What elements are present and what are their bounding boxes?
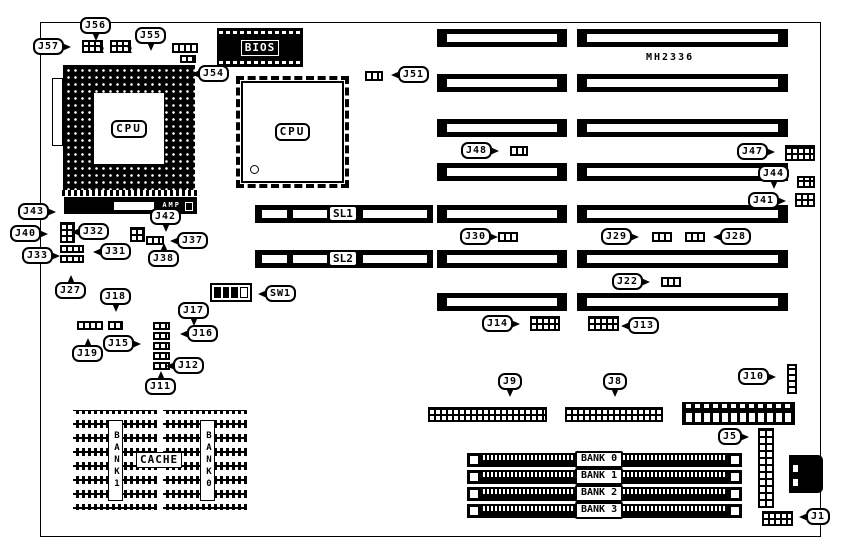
callout-j43: J43 bbox=[18, 203, 49, 220]
sw1-cell bbox=[231, 287, 238, 298]
jumper-block bbox=[153, 352, 170, 360]
callout-j15: J15 bbox=[103, 335, 134, 352]
expansion-slot bbox=[437, 293, 567, 311]
jumper-block bbox=[60, 255, 84, 263]
slot-contact-stripe bbox=[587, 34, 778, 42]
jumper-block bbox=[652, 232, 672, 242]
socket-pin-strip bbox=[62, 190, 197, 196]
jumper-block bbox=[758, 428, 774, 508]
slot-contact-stripe bbox=[447, 168, 557, 176]
simm-socket: BANK 1 bbox=[467, 470, 742, 484]
slot-contact-stripe bbox=[587, 79, 778, 87]
jumper-block bbox=[795, 193, 815, 207]
callout-j38: J38 bbox=[148, 250, 179, 267]
expansion-slot bbox=[577, 74, 788, 92]
callout-tail-icon bbox=[51, 252, 60, 260]
cpu-pga-socket: CPU bbox=[63, 65, 195, 194]
slot-contact-stripe bbox=[587, 298, 778, 306]
callout-j30: J30 bbox=[460, 228, 491, 245]
jumper-block bbox=[530, 316, 560, 331]
slot-contact-stripe bbox=[447, 79, 557, 87]
cache-label: CACHE bbox=[136, 452, 182, 468]
callout-tail-icon bbox=[489, 233, 498, 241]
jumper-block bbox=[588, 316, 619, 331]
callout-tail-icon bbox=[84, 338, 92, 347]
slot-contact-stripe bbox=[447, 34, 557, 42]
callout-j13: J13 bbox=[628, 317, 659, 334]
callout-tail-icon bbox=[611, 388, 619, 397]
slot-contact-stripe bbox=[363, 255, 427, 263]
expansion-slot bbox=[437, 74, 567, 92]
callout-j32: J32 bbox=[78, 223, 109, 240]
slot-contact-stripe bbox=[587, 168, 778, 176]
callout-tail-icon bbox=[157, 371, 165, 380]
callout-tail-icon bbox=[641, 278, 650, 286]
cache-bank1-label: BANK1 bbox=[108, 420, 123, 501]
expansion-slot bbox=[577, 29, 788, 47]
callout-tail-icon bbox=[799, 513, 808, 521]
cpu-socket-label: CPU bbox=[111, 120, 147, 138]
callout-tail-icon bbox=[112, 303, 120, 312]
jumper-block bbox=[787, 364, 797, 394]
expansion-slot bbox=[437, 250, 567, 268]
callout-tail-icon bbox=[67, 275, 75, 284]
callout-j9: J9 bbox=[498, 373, 522, 390]
jumper-block bbox=[498, 232, 518, 242]
callout-tail-icon bbox=[740, 433, 749, 441]
callout-j42: J42 bbox=[150, 208, 181, 225]
jumper-block bbox=[153, 342, 170, 350]
callout-j48: J48 bbox=[461, 142, 492, 159]
slot-contact-stripe bbox=[293, 210, 327, 218]
callout-j29: J29 bbox=[601, 228, 632, 245]
sw1-dip-switch bbox=[210, 283, 252, 302]
power-connector bbox=[682, 402, 795, 425]
callout-sw1: SW1 bbox=[265, 285, 296, 302]
pin2-marker: 2 bbox=[127, 46, 132, 56]
callout-j22: J22 bbox=[612, 273, 643, 290]
expansion-slot bbox=[437, 29, 567, 47]
expansion-slot bbox=[437, 163, 567, 181]
simm-bank-label: BANK 2 bbox=[575, 485, 623, 502]
callout-j5: J5 bbox=[718, 428, 742, 445]
callout-j51: J51 bbox=[398, 66, 429, 83]
callout-tail-icon bbox=[506, 388, 514, 397]
board-model-text: MH2336 bbox=[646, 52, 694, 63]
bios-label: BIOS bbox=[241, 40, 280, 56]
expansion-slot bbox=[577, 163, 788, 181]
cpu-qfp-body: CPU bbox=[241, 81, 344, 183]
slot-contact-stripe bbox=[587, 124, 778, 132]
callout-j47: J47 bbox=[737, 143, 768, 160]
slot-label: SL1 bbox=[328, 205, 358, 222]
slot-contact-stripe bbox=[447, 298, 557, 306]
expansion-slot bbox=[577, 293, 788, 311]
simm-clip bbox=[469, 489, 479, 499]
callout-tail-icon bbox=[770, 180, 778, 189]
callout-j17: J17 bbox=[178, 302, 209, 319]
callout-j40: J40 bbox=[10, 225, 41, 242]
slot-label: SL2 bbox=[328, 250, 358, 267]
simm-socket: BANK 3 bbox=[467, 504, 742, 518]
slot-contact-stripe bbox=[447, 255, 557, 263]
jumper-block bbox=[172, 43, 198, 53]
callout-j11: J11 bbox=[145, 378, 176, 395]
callout-j27: J27 bbox=[55, 282, 86, 299]
callout-j55: J55 bbox=[135, 27, 166, 44]
slot-contact-stripe bbox=[587, 255, 778, 263]
simm-clip bbox=[469, 455, 479, 465]
callout-tail-icon bbox=[511, 320, 520, 328]
callout-j10: J10 bbox=[738, 368, 769, 385]
simm-clip bbox=[730, 506, 740, 516]
callout-tail-icon bbox=[170, 237, 179, 245]
callout-j54: J54 bbox=[198, 65, 229, 82]
slot-contact-stripe bbox=[447, 124, 557, 132]
callout-tail-icon bbox=[766, 148, 775, 156]
motherboard-diagram: CPU AMP CPU BIOS MH2336 BANK1 BANK0 CACH… bbox=[0, 0, 842, 544]
slot-contact-stripe bbox=[262, 255, 287, 263]
callout-j19: J19 bbox=[72, 345, 103, 362]
callout-tail-icon bbox=[191, 70, 200, 78]
callout-tail-icon bbox=[621, 322, 630, 330]
callout-j31: J31 bbox=[100, 243, 131, 260]
local-bus-slot: SL1 bbox=[255, 205, 433, 223]
slot-contact-stripe bbox=[262, 210, 287, 218]
callout-tail-icon bbox=[767, 373, 776, 381]
jumper-block bbox=[762, 511, 793, 526]
callout-j14: J14 bbox=[482, 315, 513, 332]
jumper-block bbox=[565, 407, 663, 422]
expansion-slot bbox=[577, 119, 788, 137]
callout-tail-icon bbox=[180, 330, 189, 338]
callout-tail-icon bbox=[93, 248, 102, 256]
jumper-block bbox=[108, 321, 123, 330]
expansion-slot bbox=[437, 119, 567, 137]
jumper-block bbox=[510, 146, 528, 156]
simm-clip bbox=[469, 472, 479, 482]
callout-tail-icon bbox=[391, 71, 400, 79]
simm-socket: BANK 2 bbox=[467, 487, 742, 501]
simm-bank-label: BANK 3 bbox=[575, 502, 623, 519]
jumper-block bbox=[365, 71, 383, 81]
callout-tail-icon bbox=[630, 233, 639, 241]
sw1-cell bbox=[214, 287, 221, 298]
pin1-marker-icon bbox=[250, 165, 259, 174]
expansion-slot bbox=[437, 205, 567, 223]
simm-clip bbox=[469, 506, 479, 516]
callout-tail-icon bbox=[258, 290, 267, 298]
simm-clip bbox=[730, 489, 740, 499]
callout-tail-icon bbox=[147, 42, 155, 51]
callout-tail-icon bbox=[62, 43, 71, 51]
jumper-block bbox=[661, 277, 681, 287]
callout-j16: J16 bbox=[187, 325, 218, 342]
jumper-block bbox=[153, 332, 170, 340]
slot-contact-stripe bbox=[293, 255, 327, 263]
callout-tail-icon bbox=[166, 362, 175, 370]
simm-clip bbox=[730, 472, 740, 482]
callout-j1: J1 bbox=[806, 508, 830, 525]
jumper-block bbox=[60, 245, 84, 253]
cpu-qfp-chip: CPU bbox=[236, 76, 349, 188]
callout-j41: J41 bbox=[748, 192, 779, 209]
callout-j56: J56 bbox=[80, 17, 111, 34]
simm-bank-label: BANK 0 bbox=[575, 451, 623, 468]
jumper-block bbox=[797, 176, 815, 188]
simm-socket: BANK 0 bbox=[467, 453, 742, 467]
simm-bank-label: BANK 1 bbox=[575, 468, 623, 485]
jumper-block bbox=[785, 145, 815, 161]
callout-tail-icon bbox=[39, 230, 48, 238]
callout-tail-icon bbox=[71, 228, 80, 236]
keyboard-din-connector bbox=[789, 455, 823, 493]
jumper-block bbox=[180, 55, 196, 63]
slot-contact-stripe bbox=[587, 210, 778, 218]
cpu-qfp-label: CPU bbox=[275, 123, 311, 141]
expansion-slot bbox=[577, 250, 788, 268]
bios-chip: BIOS bbox=[217, 28, 303, 67]
callout-tail-icon bbox=[713, 233, 722, 241]
sw1-cell bbox=[240, 287, 249, 298]
simm-clip bbox=[730, 455, 740, 465]
callout-tail-icon bbox=[490, 147, 499, 155]
callout-j28: J28 bbox=[720, 228, 751, 245]
callout-j57: J57 bbox=[33, 38, 64, 55]
callout-tail-icon bbox=[777, 197, 786, 205]
callout-tail-icon bbox=[132, 340, 141, 348]
callout-j18: J18 bbox=[100, 288, 131, 305]
callout-j33: J33 bbox=[22, 247, 53, 264]
slot-contact-stripe bbox=[363, 210, 427, 218]
cpu-pga-window: CPU bbox=[94, 93, 164, 164]
jumper-block bbox=[685, 232, 705, 242]
sw1-cell bbox=[223, 287, 230, 298]
callout-tail-icon bbox=[47, 208, 56, 216]
callout-tail-icon bbox=[160, 243, 168, 252]
callout-tail-icon bbox=[162, 223, 170, 232]
zif-lever bbox=[52, 78, 63, 146]
callout-j44: J44 bbox=[758, 165, 789, 182]
jumper-block bbox=[428, 407, 547, 422]
jumper-block bbox=[77, 321, 103, 330]
cache-bank0-label: BANK0 bbox=[200, 420, 215, 501]
callout-tail-icon bbox=[92, 32, 100, 41]
jumper-block bbox=[153, 322, 170, 330]
callout-j8: J8 bbox=[603, 373, 627, 390]
local-bus-slot: SL2 bbox=[255, 250, 433, 268]
callout-j37: J37 bbox=[177, 232, 208, 249]
jumper-block bbox=[130, 227, 145, 242]
slot-contact-stripe bbox=[447, 210, 557, 218]
pin2-marker: 2 bbox=[99, 46, 104, 56]
callout-j12: J12 bbox=[173, 357, 204, 374]
